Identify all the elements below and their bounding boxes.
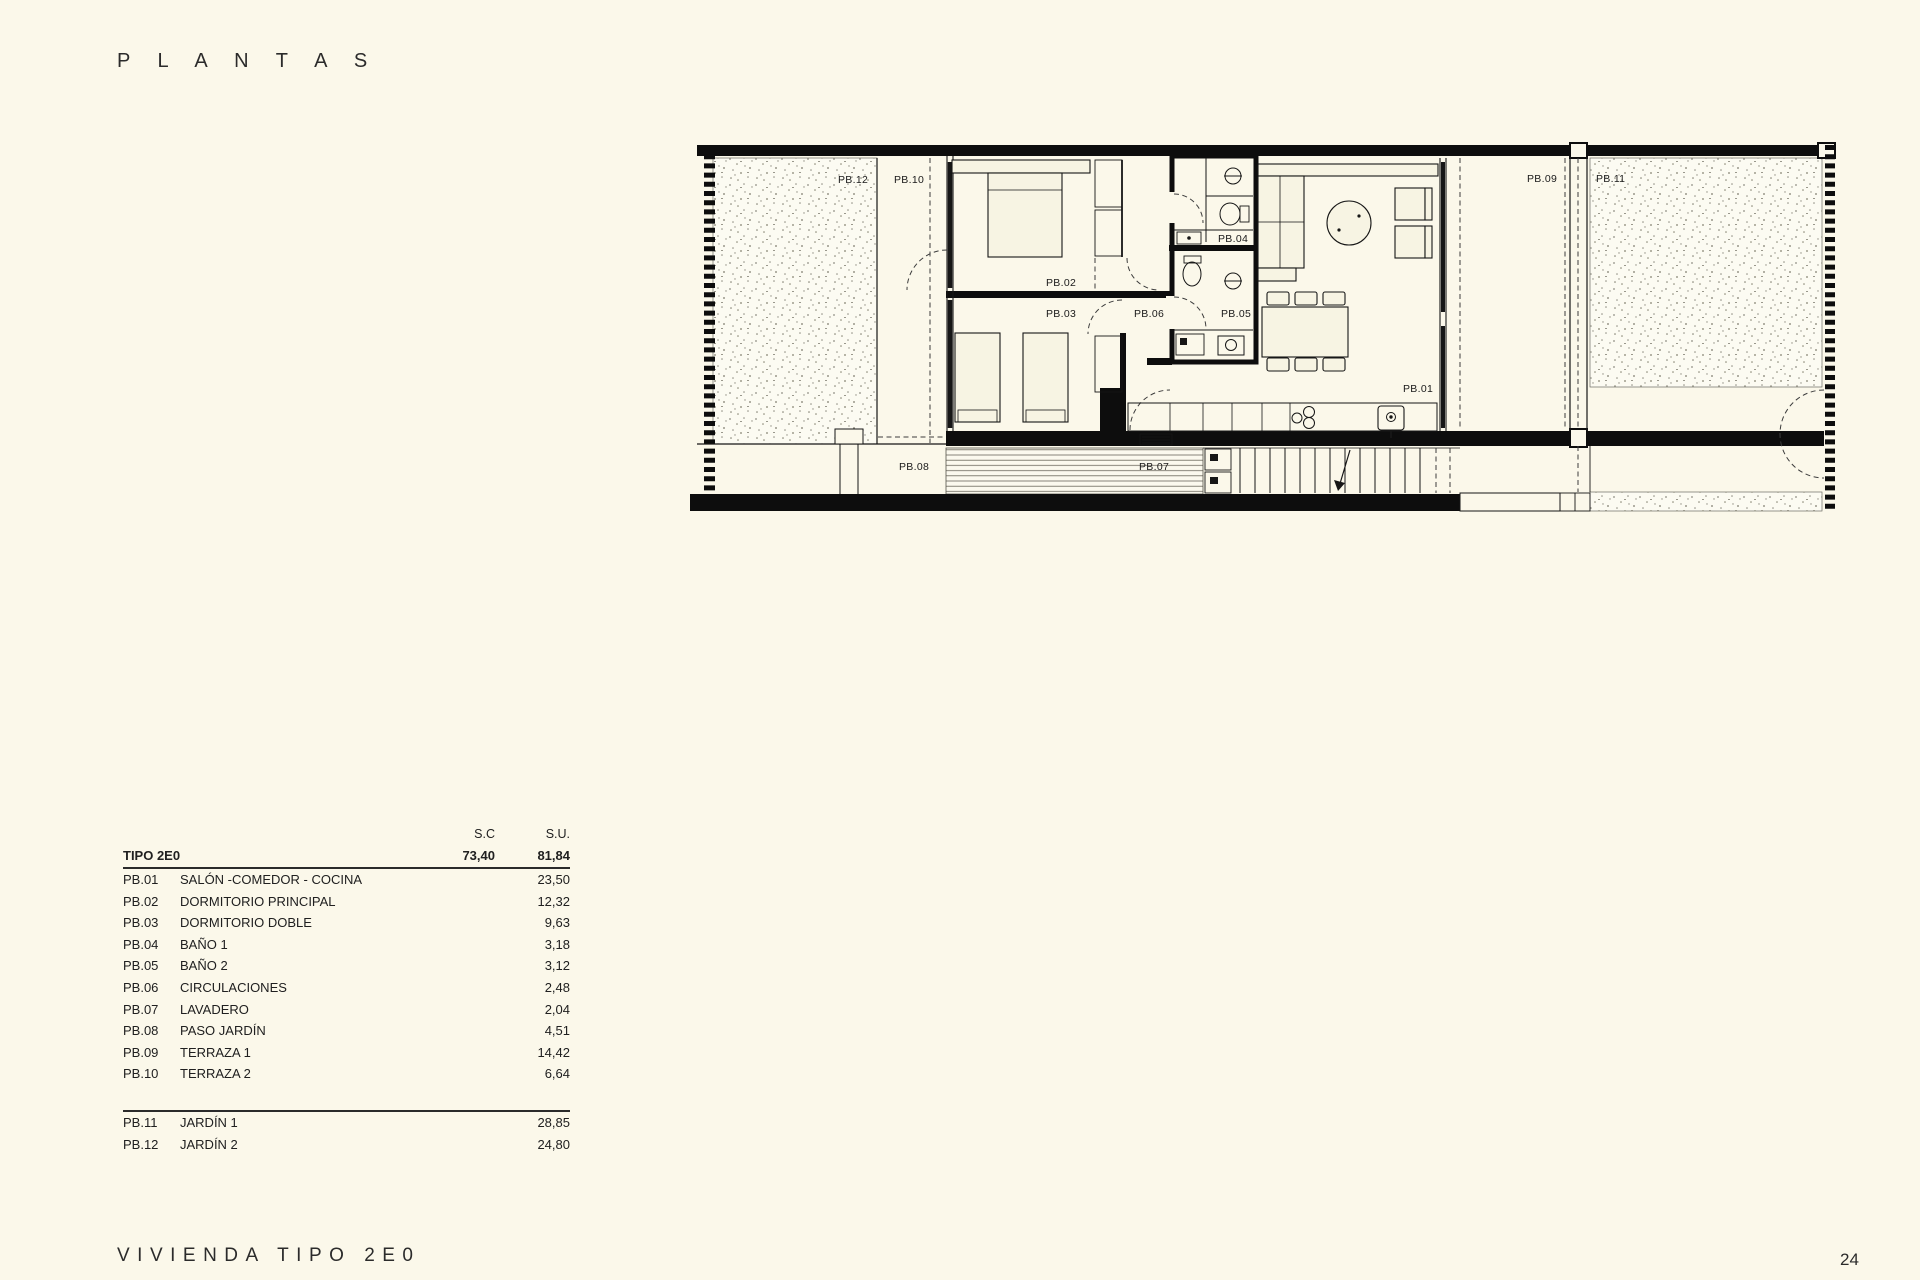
footer-title: VIVIENDA TIPO 2E0 (117, 1245, 421, 1267)
row-name: CIRCULACIONES (180, 977, 372, 999)
type-sc: 73,40 (372, 845, 495, 867)
row-name: SALÓN -COMEDOR - COCINA (180, 869, 372, 891)
dining-table (1262, 307, 1348, 357)
row-name: PASO JARDÍN (180, 1020, 372, 1042)
col-header-sc: S.C (372, 824, 495, 845)
type-su: 81,84 (495, 845, 570, 867)
room-label-pb07: PB.07 (1139, 461, 1169, 473)
page-number: 24 (1840, 1250, 1859, 1270)
col-header-su: S.U. (495, 824, 570, 845)
type-label: TIPO 2E0 (123, 845, 372, 867)
row-su: 3,18 (495, 934, 570, 956)
row-code: PB.08 (123, 1020, 180, 1042)
single-bed-2 (1023, 333, 1068, 422)
row-su: 3,12 (495, 955, 570, 977)
row-su: 12,32 (495, 891, 570, 913)
row-su: 2,48 (495, 977, 570, 999)
table-row: PB.11 JARDÍN 1 28,85 (123, 1112, 570, 1134)
glazing-east (1440, 158, 1446, 431)
row-name: DORMITORIO DOBLE (180, 912, 372, 934)
toilet-1 (1220, 203, 1240, 225)
table-gap (123, 1085, 570, 1110)
armchair-2 (1395, 226, 1425, 258)
row-code: PB.05 (123, 955, 180, 977)
table-row: PB.01 SALÓN -COMEDOR - COCINA 23,50 (123, 869, 570, 891)
row-code: PB.12 (123, 1134, 180, 1156)
garden-steps (835, 429, 863, 494)
document-page: P L A N T A S (0, 0, 1920, 1280)
single-bed-1 (955, 333, 1000, 422)
table-row: PB.08 PASO JARDÍN 4,51 (123, 1020, 570, 1042)
table-row: PB.04 BAÑO 1 3,18 (123, 934, 570, 956)
armchair-1 (1395, 188, 1425, 220)
row-name: DORMITORIO PRINCIPAL (180, 891, 372, 913)
table-row: PB.12 JARDÍN 2 24,80 (123, 1134, 570, 1156)
room-label-pb02: PB.02 (1046, 277, 1076, 289)
row-code: PB.04 (123, 934, 180, 956)
garden-pb12 (713, 158, 877, 444)
row-code: PB.03 (123, 912, 180, 934)
row-code: PB.10 (123, 1063, 180, 1085)
table-row: PB.06 CIRCULACIONES 2,48 (123, 977, 570, 999)
table-row: PB.02 DORMITORIO PRINCIPAL 12,32 (123, 891, 570, 913)
row-name: BAÑO 1 (180, 934, 372, 956)
washer (1218, 336, 1244, 355)
row-su: 24,80 (495, 1134, 570, 1156)
table-row: PB.07 LAVADERO 2,04 (123, 999, 570, 1021)
row-code: PB.11 (123, 1112, 180, 1134)
room-label-pb04: PB.04 (1218, 233, 1248, 245)
table-header: S.C S.U. (123, 824, 570, 845)
room-label-pb09: PB.09 (1527, 173, 1557, 185)
row-code: PB.07 (123, 999, 180, 1021)
row-su: 23,50 (495, 869, 570, 891)
row-name: TERRAZA 1 (180, 1042, 372, 1064)
furniture (952, 160, 1438, 445)
toilet-2 (1183, 262, 1201, 286)
row-su: 28,85 (495, 1112, 570, 1134)
table-row: PB.09 TERRAZA 1 14,42 (123, 1042, 570, 1064)
row-name: JARDÍN 2 (180, 1134, 372, 1156)
table-row: PB.10 TERRAZA 2 6,64 (123, 1063, 570, 1085)
type-row: TIPO 2E0 73,40 81,84 (123, 845, 570, 867)
coffee-table (1327, 201, 1371, 245)
room-label-pb11: PB.11 (1596, 173, 1625, 185)
room-label-pb12: PB.12 (838, 174, 868, 186)
row-su: 6,64 (495, 1063, 570, 1085)
page-title: P L A N T A S (117, 50, 378, 73)
area-table: S.C S.U. TIPO 2E0 73,40 81,84 PB.01 SALÓ… (123, 824, 570, 1155)
row-name: JARDÍN 1 (180, 1112, 372, 1134)
double-bed (988, 173, 1062, 257)
table-row: PB.03 DORMITORIO DOBLE 9,63 (123, 912, 570, 934)
row-code: PB.09 (123, 1042, 180, 1064)
headboard (952, 160, 1090, 173)
room-label-pb01: PB.01 (1403, 383, 1433, 395)
stairs (1203, 448, 1460, 493)
room-label-pb10: PB.10 (894, 174, 924, 186)
row-code: PB.01 (123, 869, 180, 891)
room-label-pb06: PB.06 (1134, 308, 1164, 320)
room-label-pb05: PB.05 (1221, 308, 1251, 320)
row-name: TERRAZA 2 (180, 1063, 372, 1085)
row-su: 14,42 (495, 1042, 570, 1064)
table-row: PB.05 BAÑO 2 3,12 (123, 955, 570, 977)
room-label-pb03: PB.03 (1046, 308, 1076, 320)
row-code: PB.02 (123, 891, 180, 913)
floor-plan: PB.12 PB.10 PB.02 PB.03 PB.04 PB.06 PB.0… (690, 135, 1855, 520)
row-name: LAVADERO (180, 999, 372, 1021)
room-label-pb08: PB.08 (899, 461, 929, 473)
kitchen-sink (1292, 413, 1302, 423)
sideboard (1258, 164, 1438, 176)
row-code: PB.06 (123, 977, 180, 999)
row-su: 2,04 (495, 999, 570, 1021)
row-su: 4,51 (495, 1020, 570, 1042)
row-su: 9,63 (495, 912, 570, 934)
row-name: BAÑO 2 (180, 955, 372, 977)
